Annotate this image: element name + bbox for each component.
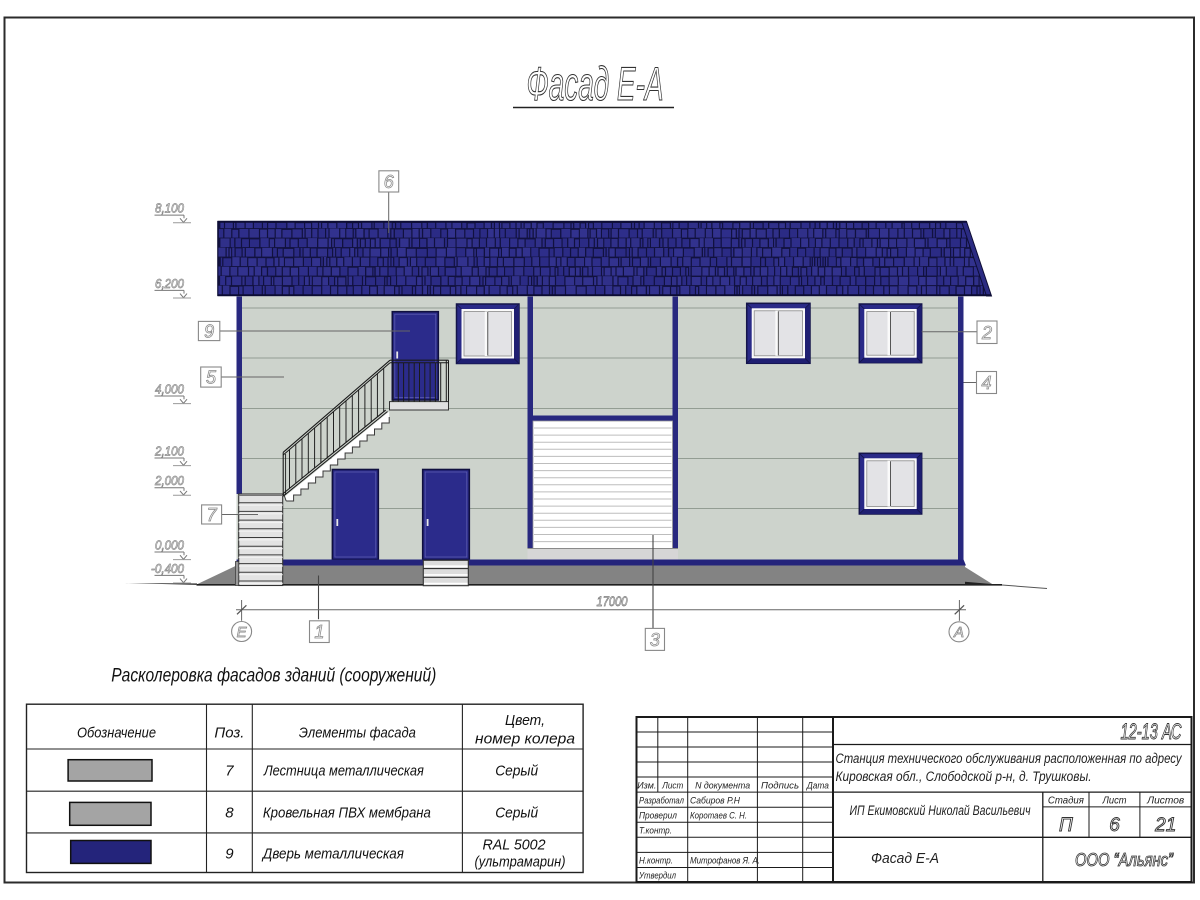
svg-text:4: 4 [981, 373, 991, 393]
svg-text:Сабиров Р.Н: Сабиров Р.Н [690, 796, 740, 807]
svg-text:9: 9 [225, 846, 234, 863]
svg-text:Лист: Лист [661, 781, 683, 792]
svg-text:П: П [1059, 815, 1073, 836]
svg-text:21: 21 [1154, 815, 1176, 836]
svg-text:Дверь металлическая: Дверь металлическая [261, 846, 404, 863]
svg-text:1: 1 [314, 622, 324, 642]
svg-text:8: 8 [225, 805, 234, 822]
svg-text:0,000: 0,000 [155, 538, 185, 553]
svg-text:Митрофанов Я. А.: Митрофанов Я. А. [690, 856, 760, 867]
svg-text:Стадия: Стадия [1048, 796, 1085, 807]
svg-text:ООО “Альянс”: ООО “Альянс” [1075, 850, 1174, 870]
svg-text:-0,400: -0,400 [151, 561, 185, 576]
svg-text:8,100: 8,100 [155, 201, 185, 216]
svg-text:Кровельная ПВХ мембрана: Кровельная ПВХ мембрана [263, 805, 431, 822]
svg-text:3: 3 [650, 630, 660, 650]
svg-text:7: 7 [225, 763, 234, 780]
svg-text:Изм.: Изм. [637, 781, 656, 792]
svg-text:А: А [953, 624, 964, 641]
svg-text:номер колера: номер колера [475, 731, 575, 748]
svg-text:N документа: N документа [695, 781, 750, 792]
svg-text:Т.контр.: Т.контр. [639, 826, 672, 837]
svg-text:4,000: 4,000 [155, 382, 185, 397]
svg-text:Е: Е [237, 624, 248, 641]
svg-text:6: 6 [1109, 815, 1120, 836]
svg-text:12-13 АС: 12-13 АС [1121, 719, 1182, 744]
svg-text:Станция технического обслужива: Станция технического обслуживания распол… [836, 751, 1183, 766]
svg-text:Коротаев С. Н.: Коротаев С. Н. [690, 811, 747, 822]
svg-text:6,200: 6,200 [155, 276, 185, 291]
svg-text:ИП Екимовский Николай Васильев: ИП Екимовский Николай Васильевич [850, 803, 1031, 818]
svg-text:Расколеровка фасадов зданий (с: Расколеровка фасадов зданий (сооружений) [111, 665, 436, 687]
svg-text:Дата: Дата [806, 781, 829, 792]
svg-text:2: 2 [981, 323, 992, 343]
svg-text:5: 5 [206, 368, 217, 388]
svg-text:Серый: Серый [495, 805, 539, 822]
svg-text:RAL 5002: RAL 5002 [483, 837, 547, 854]
svg-text:Лестница металлическая: Лестница металлическая [263, 763, 424, 780]
svg-text:Обозначение: Обозначение [77, 725, 156, 742]
svg-text:Н.контр.: Н.контр. [639, 856, 673, 867]
svg-text:Поз.: Поз. [214, 725, 244, 742]
svg-text:Утвердил: Утвердил [638, 871, 676, 882]
svg-text:9: 9 [204, 322, 214, 342]
svg-text:6: 6 [384, 172, 395, 192]
svg-text:Элементы фасада: Элементы фасада [299, 725, 416, 742]
svg-text:(ультрамарин): (ультрамарин) [475, 854, 566, 871]
svg-text:2,000: 2,000 [154, 473, 185, 488]
svg-text:7: 7 [207, 505, 218, 525]
svg-text:Листов: Листов [1146, 796, 1184, 807]
svg-text:Серый: Серый [495, 763, 539, 780]
svg-text:Разработал: Разработал [639, 796, 685, 807]
svg-text:Подпись: Подпись [761, 781, 799, 792]
svg-text:17000: 17000 [597, 594, 628, 609]
svg-text:Цвет,: Цвет, [505, 712, 545, 729]
svg-text:Кировская обл., Слободской р-н: Кировская обл., Слободской р-н, д. Трушк… [836, 769, 1092, 784]
svg-text:Лист: Лист [1102, 796, 1127, 807]
svg-text:Фасад Е-А: Фасад Е-А [527, 57, 664, 110]
svg-text:Проверил: Проверил [639, 811, 678, 822]
svg-text:Фасад Е-А: Фасад Е-А [871, 850, 939, 867]
svg-text:2,100: 2,100 [154, 444, 185, 459]
